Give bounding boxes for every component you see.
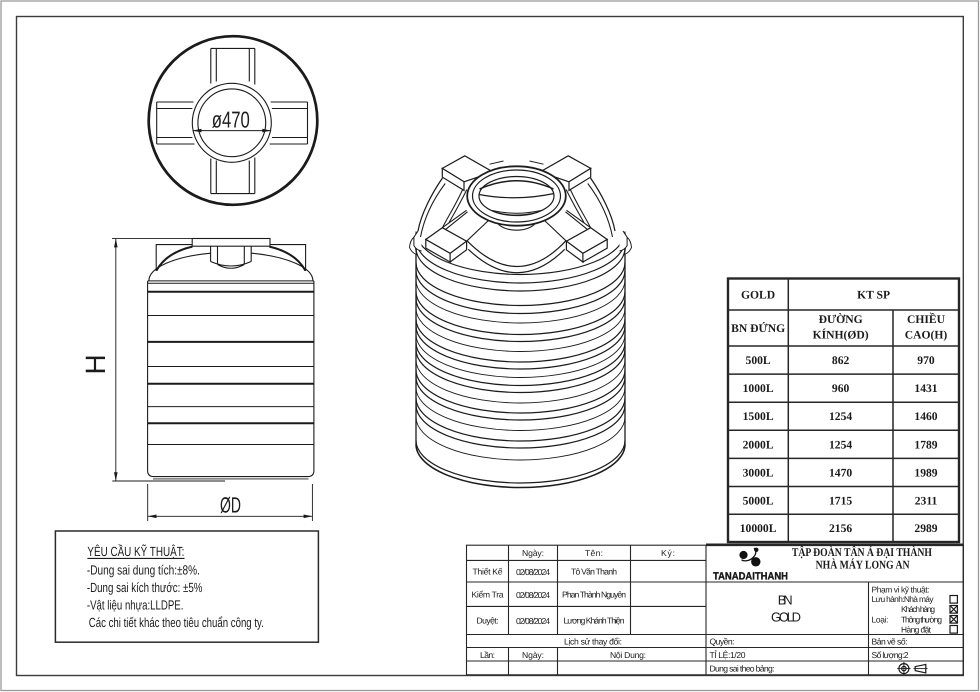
svg-text:BN: BN: [778, 593, 793, 608]
svg-text:TANADAITHANH: TANADAITHANH: [713, 571, 788, 583]
svg-text:02/08/2024: 02/08/2024: [516, 567, 550, 577]
svg-text:02/08/2024: 02/08/2024: [516, 590, 550, 600]
svg-text:1460: 1460: [914, 410, 937, 423]
svg-text:2000L: 2000L: [743, 438, 774, 451]
svg-text:2311: 2311: [915, 494, 938, 507]
svg-text:1470: 1470: [829, 466, 852, 479]
svg-text:Lần:: Lần:: [480, 650, 495, 660]
svg-text:GOLD: GOLD: [771, 610, 801, 625]
svg-text:Bản vẽ số:: Bản vẽ số:: [872, 637, 908, 647]
svg-text:CAO(H): CAO(H): [905, 329, 948, 342]
svg-text:Lưu hành:Nhà máy: Lưu hành:Nhà máy: [872, 594, 935, 604]
svg-text:H: H: [80, 354, 111, 374]
svg-text:TỈ LỆ:1/20: TỈ LỆ:1/20: [710, 650, 746, 660]
svg-text:2156: 2156: [829, 522, 852, 535]
svg-text:ø470: ø470: [212, 106, 250, 132]
svg-text:5000L: 5000L: [743, 494, 774, 507]
svg-text:Thông thường: Thông thường: [901, 615, 942, 625]
svg-text:Kiểm Tra: Kiểm Tra: [472, 590, 504, 600]
svg-text:-Dung sai dung tích:±8%.: -Dung sai dung tích:±8%.: [87, 563, 200, 578]
svg-text:1431: 1431: [914, 382, 937, 395]
svg-text:YÊU CẦU KỸ THUẬT:: YÊU CẦU KỸ THUẬT:: [87, 544, 184, 559]
svg-text:-Vật liệu nhựa:LLDPE.: -Vật liệu nhựa:LLDPE.: [87, 598, 183, 613]
svg-text:Ngày:: Ngày:: [522, 548, 544, 558]
svg-text:Loại:: Loại:: [872, 615, 889, 625]
svg-text:3000L: 3000L: [743, 466, 774, 479]
svg-text:Tô Văn Thanh: Tô Văn Thanh: [571, 567, 617, 577]
svg-text:10000L: 10000L: [740, 522, 777, 535]
svg-text:Ngày:: Ngày:: [522, 650, 544, 660]
svg-text:Duyệt:: Duyệt:: [477, 616, 499, 626]
svg-text:1789: 1789: [914, 438, 937, 451]
svg-text:862: 862: [832, 354, 850, 367]
svg-text:Nội Dung:: Nội Dung:: [610, 650, 646, 660]
svg-text:GOLD: GOLD: [741, 288, 775, 301]
svg-text:1500L: 1500L: [743, 410, 774, 423]
svg-text:2989: 2989: [914, 522, 937, 535]
svg-text:Lịch sử thay đổi:: Lịch sử thay đổi:: [564, 637, 622, 647]
svg-text:Dung sai theo bảng:: Dung sai theo bảng:: [710, 664, 775, 674]
svg-text:Phan Thành Nguyên: Phan Thành Nguyên: [562, 590, 626, 600]
svg-text:CHIỀU: CHIỀU: [907, 312, 946, 326]
svg-text:Quyền:: Quyền:: [710, 637, 735, 647]
svg-text:1000L: 1000L: [743, 382, 774, 395]
svg-text:NHÀ MÁY LONG AN: NHÀ MÁY LONG AN: [816, 558, 910, 572]
svg-text:Tên:: Tên:: [585, 548, 603, 558]
svg-text:-Dung sai kích thước: ±5%: -Dung sai kích thước: ±5%: [87, 580, 203, 595]
svg-text:500L: 500L: [746, 354, 771, 367]
svg-text:960: 960: [832, 382, 850, 395]
svg-text:1254: 1254: [829, 410, 852, 423]
svg-text:Phạm vi kỹ thuật:: Phạm vi kỹ thuật:: [872, 584, 930, 594]
svg-text:Số lượng:2: Số lượng:2: [872, 650, 909, 660]
svg-text:Thiết Kế: Thiết Kế: [473, 567, 503, 577]
svg-text:BN ĐỨNG: BN ĐỨNG: [731, 322, 785, 335]
svg-text:1254: 1254: [829, 438, 852, 451]
svg-text:Các chi tiết khác theo tiêu ch: Các chi tiết khác theo tiêu chuẩn công t…: [89, 615, 264, 630]
svg-text:1715: 1715: [829, 494, 852, 507]
svg-text:Khách hàng: Khách hàng: [901, 604, 935, 614]
svg-text:KÍNH(ØD): KÍNH(ØD): [813, 329, 869, 342]
svg-text:1989: 1989: [914, 466, 937, 479]
svg-text:Ký:: Ký:: [661, 548, 675, 558]
svg-text:Lương Khánh Thiện: Lương Khánh Thiện: [564, 616, 625, 626]
svg-text:970: 970: [917, 354, 935, 367]
svg-text:Hàng đặt: Hàng đặt: [901, 625, 932, 635]
svg-text:KT SP: KT SP: [857, 288, 890, 301]
svg-text:ĐƯỜNG: ĐƯỜNG: [819, 313, 863, 326]
svg-text:02/08/2024: 02/08/2024: [516, 616, 550, 626]
svg-text:ØD: ØD: [220, 493, 241, 518]
